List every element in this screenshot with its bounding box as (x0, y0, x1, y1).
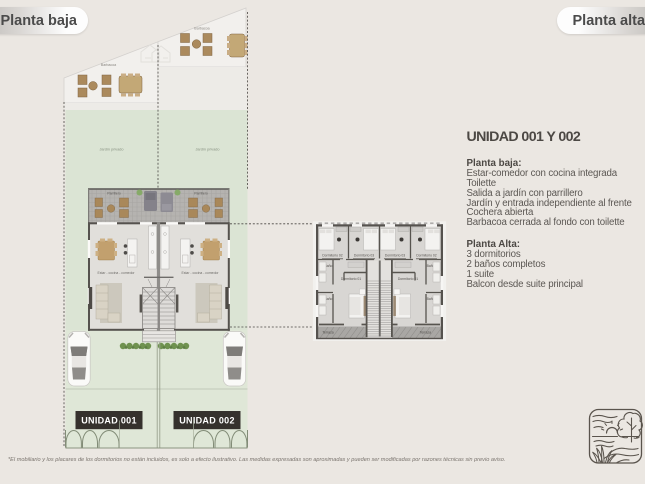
svg-text:Dormitorio 02: Dormitorio 02 (322, 254, 342, 258)
svg-text:Estar - cocina - comedor: Estar - cocina - comedor (182, 271, 220, 275)
svg-text:Dormitorio 01: Dormitorio 01 (398, 277, 418, 281)
svg-text:Parrillero: Parrillero (194, 192, 208, 196)
svg-text:Terraza: Terraza (322, 331, 333, 335)
svg-text:Dormitorio 01: Dormitorio 01 (341, 277, 361, 281)
svg-text:Terraza: Terraza (420, 331, 431, 335)
svg-text:Jardín privado: Jardín privado (195, 148, 219, 152)
svg-text:Dormitorio 03: Dormitorio 03 (354, 254, 374, 258)
svg-text:Dormitorio 02: Dormitorio 02 (416, 254, 436, 258)
svg-text:Jardín privado: Jardín privado (99, 148, 123, 152)
svg-text:Parrillero: Parrillero (107, 192, 121, 196)
svg-text:UNIDAD 002: UNIDAD 002 (179, 416, 235, 426)
svg-text:Barbacoa: Barbacoa (194, 27, 209, 31)
svg-text:Barbacoa: Barbacoa (101, 63, 116, 67)
svg-text:Estar - cocina - comedor: Estar - cocina - comedor (98, 271, 136, 275)
svg-text:UNIDAD 001: UNIDAD 001 (81, 416, 137, 426)
svg-text:Dormitorio 03: Dormitorio 03 (385, 254, 405, 258)
